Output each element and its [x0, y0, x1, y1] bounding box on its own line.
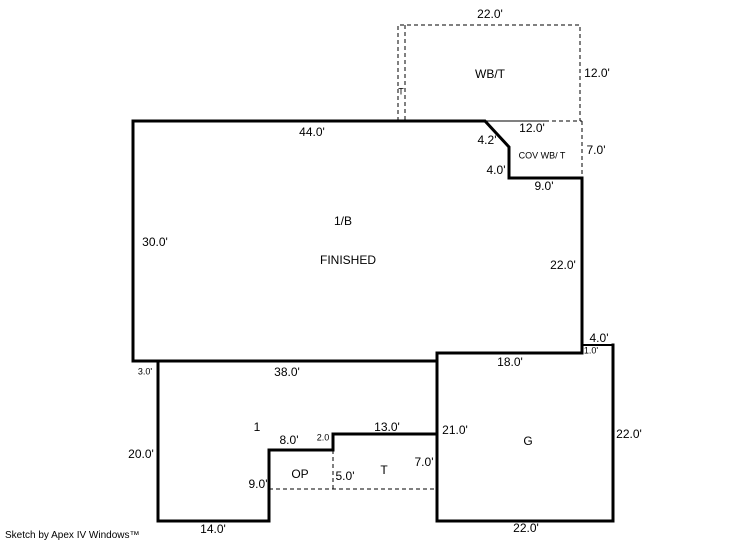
dim-t-right: 7.0' [415, 456, 434, 468]
dim-cov-diagonal: 4.2' [478, 134, 497, 146]
dim-garage-right: 22.0' [616, 428, 642, 440]
floor-plan-sketch: 22.0' 12.0' WB/T T 4.2' 12.0' 7.0' COV W… [0, 0, 746, 547]
dim-t-top: 13.0' [374, 421, 400, 433]
dim-wbt-right: 12.0' [584, 67, 610, 79]
area-label-area1: 1 [254, 421, 261, 433]
dim-cov-left: 4.0' [487, 164, 506, 176]
dim-cov-top: 12.0' [519, 122, 545, 134]
dim-main-left-offset: 3.0' [138, 368, 152, 377]
dim-garage-jog-right: 1.0' [584, 347, 598, 356]
sketch-credit: Sketch by Apex IV Windows™ [5, 531, 140, 541]
dim-cov-bottom: 9.0' [535, 180, 554, 192]
dim-op-step: 2.0 [317, 434, 330, 443]
dim-garage-jog-top: 4.0' [590, 332, 609, 344]
dim-area1-left: 20.0' [128, 448, 154, 460]
dim-op-right: 5.0' [336, 470, 355, 482]
dim-op-top: 8.0' [280, 434, 299, 446]
area-label-main-finished: FINISHED [320, 254, 376, 266]
area-label-main-1b: 1/B [334, 215, 352, 227]
dim-cov-right: 7.0' [587, 144, 606, 156]
dim-op-left: 9.0' [249, 478, 268, 490]
main-building-outline [133, 121, 582, 361]
dim-garage-left: 21.0' [442, 424, 468, 436]
area-label-wbt: WB/T [475, 68, 505, 80]
area-label-op: OP [291, 468, 308, 480]
dim-main-right: 22.0' [550, 259, 576, 271]
dim-main-top: 44.0' [299, 126, 325, 138]
dim-main-bottom: 38.0' [274, 366, 300, 378]
dim-main-left: 30.0' [142, 236, 168, 248]
dim-garage-top: 18.0' [497, 356, 523, 368]
dim-wbt-top: 22.0' [477, 8, 503, 20]
dim-area1-bottom: 14.0' [200, 523, 226, 535]
dim-garage-bottom: 22.0' [513, 522, 539, 534]
area-label-garage: G [523, 435, 532, 447]
floor-plan-drawing [0, 0, 746, 547]
area-label-cov: COV WB/ T [519, 152, 566, 161]
area-label-wbt-t-strip: T [398, 88, 404, 97]
area-label-t: T [380, 464, 387, 476]
